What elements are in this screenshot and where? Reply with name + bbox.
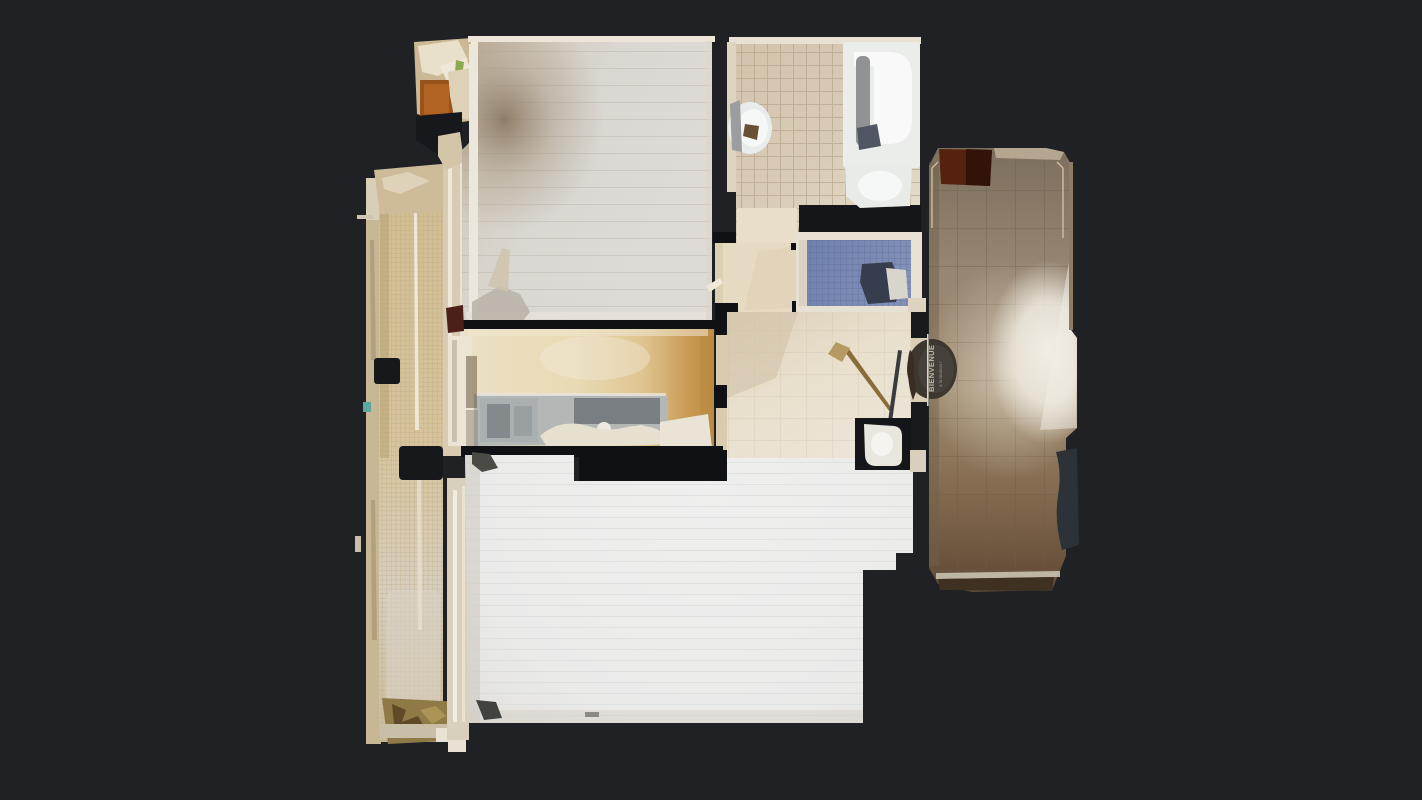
svg-text:a la maison !: a la maison ! xyxy=(938,361,943,387)
